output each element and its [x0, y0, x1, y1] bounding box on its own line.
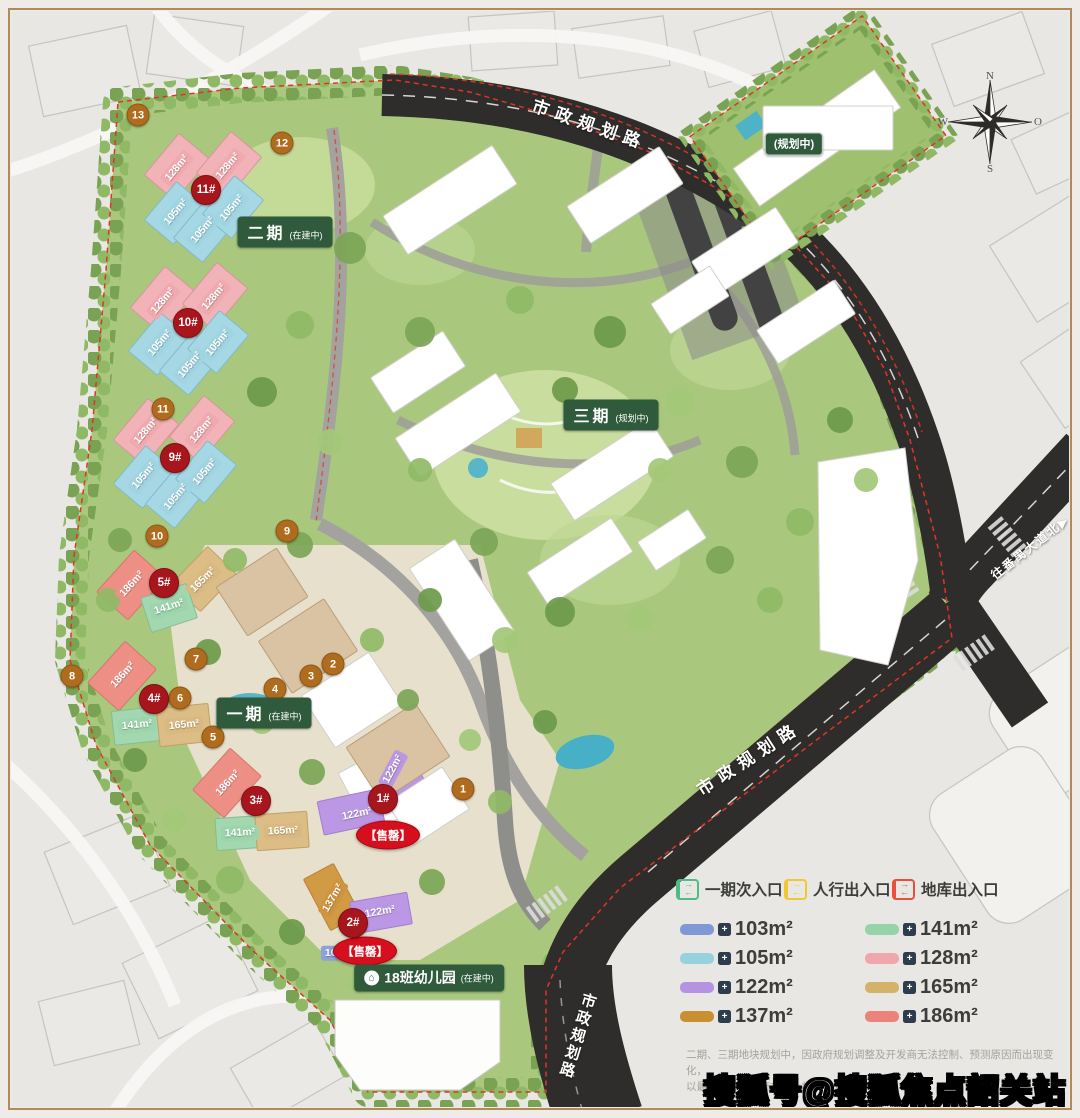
phase-label: 二期(在建中) — [237, 217, 332, 248]
floorplan-icon: + — [903, 952, 916, 965]
legend-area-item: +186m² — [865, 1005, 978, 1028]
building-number-marker: 10# — [173, 308, 203, 338]
building-number-marker: 5# — [149, 568, 179, 598]
legend-area-item: +141m² — [865, 918, 978, 941]
site-plan-map: ⌂ 18班幼儿园 (在建中) N O S W 128m²128m²105m²10… — [0, 0, 1080, 1118]
phase-label-status: (规划中) — [774, 136, 814, 152]
legend-area-item: +103m² — [680, 918, 793, 941]
floorplan-icon: + — [718, 1010, 731, 1023]
unit-area-tag: 186m² — [105, 656, 141, 694]
floorplan-icon: + — [903, 923, 916, 936]
site-point-marker: 3 — [300, 665, 323, 688]
unit-area-tag: 165m² — [184, 561, 221, 598]
sold-out-badge: 【售罄】 — [356, 821, 420, 850]
unit-area-tag: 105m² — [142, 324, 178, 363]
building-number-marker: 4# — [139, 684, 169, 714]
legend-entrance-item: →←人行出入口 — [784, 878, 891, 900]
legend-area-label: 165m² — [920, 976, 978, 999]
site-point-marker: 12 — [271, 132, 294, 155]
legend-color-swatch — [680, 982, 714, 993]
entrance-gate-icon: →← — [892, 879, 915, 900]
legend: →←一期次入口→←人行出入口→←地库出入口+103m²+105m²+122m²+… — [672, 876, 1062, 1046]
floorplan-icon: + — [718, 923, 731, 936]
unit-area-tag: 128m² — [159, 149, 195, 188]
compass-north-label: N — [986, 70, 994, 82]
phase-label-status: (规划中) — [616, 412, 649, 425]
compass-west-label: W — [938, 116, 948, 128]
legend-color-swatch — [865, 982, 899, 993]
building-number-marker: 11# — [191, 175, 221, 205]
compass-east-label: O — [1034, 116, 1042, 128]
unit-area-tag: 186m² — [114, 565, 150, 603]
legend-area-label: 103m² — [735, 918, 793, 941]
legend-color-swatch — [865, 924, 899, 935]
entrance-gate-icon: →← — [676, 879, 699, 900]
legend-color-swatch — [680, 924, 714, 935]
phase-label: 三期(规划中) — [563, 400, 658, 431]
watermark: 搜狐号@搜狐焦点韶关站 — [704, 1066, 1066, 1112]
site-point-marker: 1 — [452, 778, 475, 801]
road-name-label: 往番禺大道北▶ — [987, 511, 1073, 583]
kindergarten-icon: ⌂ — [364, 970, 379, 985]
kindergarten-label-text: 18班幼儿园 — [384, 968, 456, 988]
legend-color-swatch — [865, 953, 899, 964]
unit-area-tag: 165m² — [263, 823, 302, 839]
legend-area-item: +137m² — [680, 1005, 793, 1028]
floorplan-icon: + — [903, 981, 916, 994]
unit-area-tag: 105m² — [158, 478, 194, 517]
unit-area-tag: 105m² — [158, 193, 194, 232]
phase-label: 一期(在建中) — [216, 698, 311, 729]
legend-area-item: +105m² — [680, 947, 793, 970]
kindergarten-label-status: (在建中) — [461, 971, 494, 984]
legend-entrance-label: 一期次入口 — [705, 878, 783, 900]
legend-entrance-item: →←地库出入口 — [892, 878, 999, 900]
building-number-marker: 3# — [241, 786, 271, 816]
site-point-marker: 13 — [127, 104, 150, 127]
legend-area-item: +165m² — [865, 976, 978, 999]
road-name-label: 市政规划路 — [554, 990, 600, 1082]
legend-entrance-label: 人行出入口 — [813, 878, 891, 900]
unit-area-tag: 128m² — [196, 278, 232, 317]
compass-south-label: S — [987, 163, 993, 175]
site-point-marker: 9 — [276, 520, 299, 543]
legend-area-label: 128m² — [920, 947, 978, 970]
legend-area-label: 186m² — [920, 1005, 978, 1028]
unit-area-tag: 141m² — [117, 716, 156, 734]
road-name-label: 市政规划路 — [691, 714, 805, 800]
site-point-marker: 7 — [185, 648, 208, 671]
unit-area-tag: 128m² — [184, 411, 220, 450]
sold-out-badge: 【售罄】 — [333, 937, 397, 966]
phase-label-text: 一期 — [226, 701, 264, 725]
entrance-gate-icon: →← — [784, 879, 807, 900]
site-point-marker: 10 — [146, 525, 169, 548]
building-number-marker: 9# — [160, 443, 190, 473]
legend-color-swatch — [680, 1011, 714, 1022]
phase-label-status: (在建中) — [269, 710, 302, 723]
legend-entrance-item: →←一期次入口 — [676, 878, 783, 900]
unit-area-tag: 165m² — [164, 716, 203, 734]
legend-area-label: 137m² — [735, 1005, 793, 1028]
legend-area-item: +128m² — [865, 947, 978, 970]
unit-area-tag: 105m² — [200, 324, 236, 363]
building-number-marker: 2# — [338, 908, 368, 938]
legend-color-swatch — [865, 1011, 899, 1022]
unit-area-tag: 141m² — [220, 825, 259, 841]
kindergarten-label: ⌂ 18班幼儿园 (在建中) — [354, 965, 504, 992]
legend-area-label: 122m² — [735, 976, 793, 999]
site-point-marker: 8 — [61, 665, 84, 688]
floorplan-icon: + — [718, 952, 731, 965]
site-point-marker: 11 — [152, 398, 175, 421]
unit-area-tag: 141m² — [149, 594, 190, 620]
floorplan-icon: + — [903, 1010, 916, 1023]
legend-area-label: 141m² — [920, 918, 978, 941]
unit-area-tag: 105m² — [126, 457, 162, 496]
legend-color-swatch — [680, 953, 714, 964]
site-point-marker: 5 — [202, 726, 225, 749]
legend-area-label: 105m² — [735, 947, 793, 970]
phase-label-status: (在建中) — [290, 229, 323, 242]
phase-label-text: 三期 — [573, 403, 611, 427]
building-number-marker: 1# — [368, 784, 398, 814]
phase-label: (规划中) — [765, 133, 823, 156]
site-point-marker: 6 — [169, 687, 192, 710]
floorplan-icon: + — [718, 981, 731, 994]
site-point-marker: 2 — [322, 653, 345, 676]
legend-entrance-label: 地库出入口 — [921, 878, 999, 900]
phase-label-text: 二期 — [247, 220, 285, 244]
road-name-label: 市政规划路 — [529, 92, 651, 155]
legend-area-item: +122m² — [680, 976, 793, 999]
